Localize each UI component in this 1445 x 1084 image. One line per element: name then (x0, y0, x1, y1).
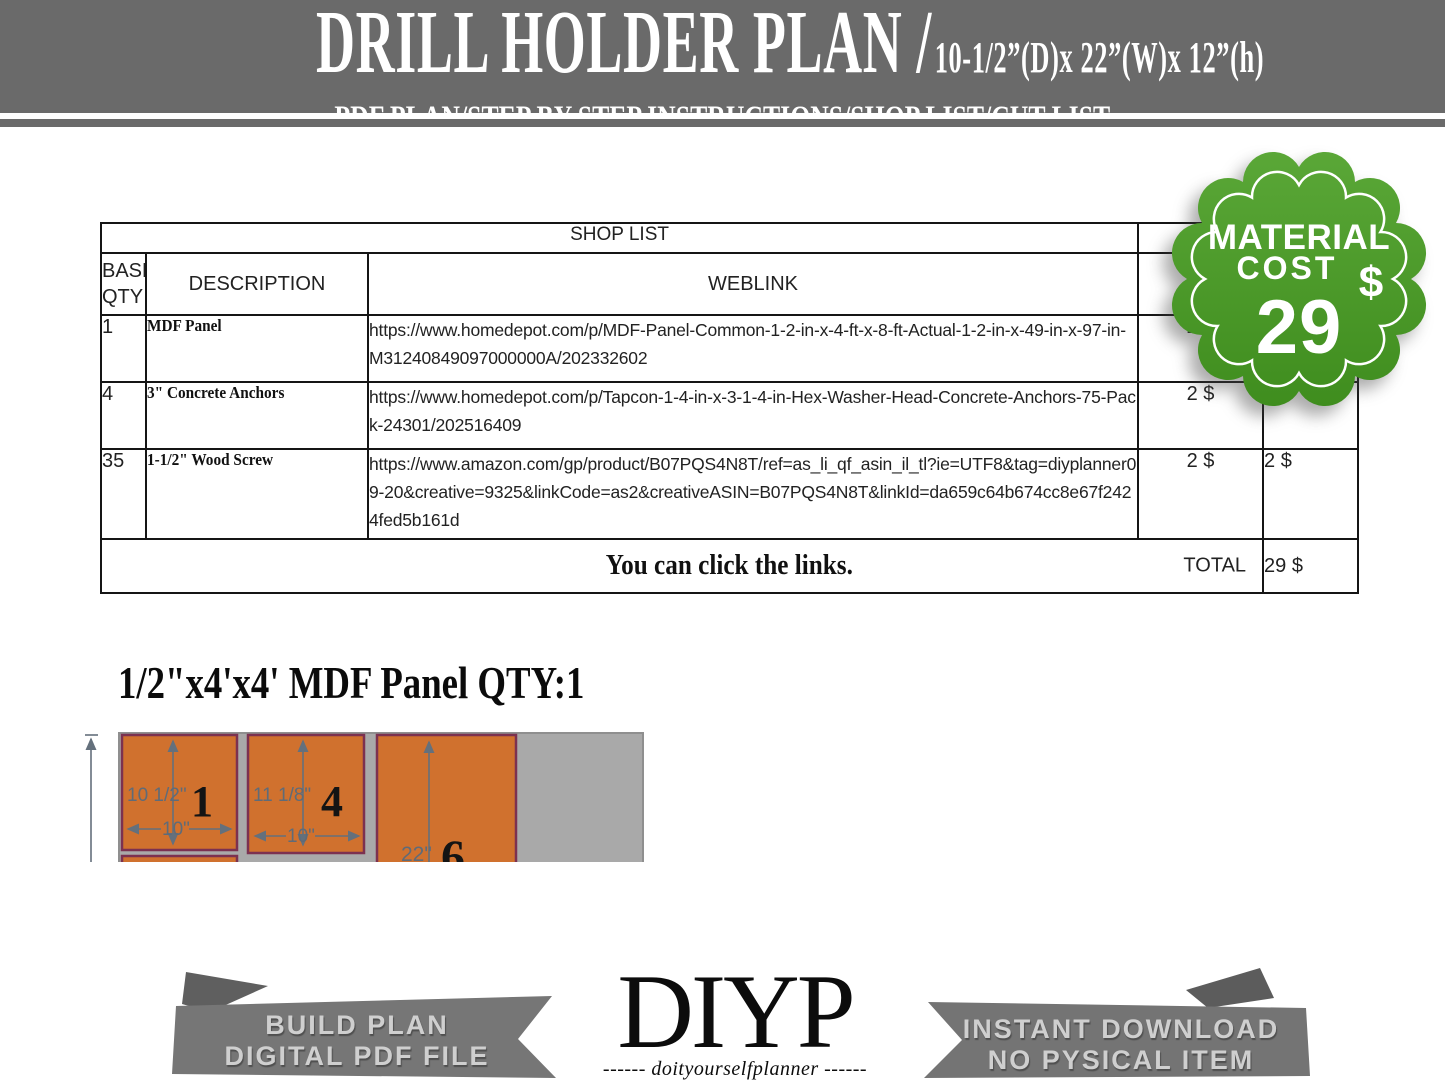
column-header-weblink: WEBLINK (368, 253, 1138, 315)
row-qty: 4 (101, 382, 146, 449)
row-description: 3" Concrete Anchors (146, 382, 368, 449)
ribbon-line1: BUILD PLAN (192, 1010, 522, 1041)
total-label: TOTAL (1183, 555, 1246, 578)
piece1-width-label: 10" (162, 819, 190, 840)
instant-download-ribbon: INSTANT DOWNLOAD NO PYSICAL ITEM (878, 962, 1314, 1080)
row-price2: 2 $ (1263, 449, 1358, 539)
page-subtitle: PDF PLAN/STEP BY STEP INSTRUCTIONS/SHOP … (335, 101, 1111, 113)
cut-diagram: 10 1/2" 1 10" 11 1/8" 4 10" 22" 6 (85, 732, 645, 862)
page-title: DRILL HOLDER PLAN / (316, 0, 932, 92)
column-header-base-qty: BASEQTY (101, 253, 146, 315)
ribbon-line1: INSTANT DOWNLOAD (956, 1014, 1286, 1045)
diyp-logo: DIYP ------ doityourselfplanner ------ (588, 962, 882, 1081)
weblink-text[interactable]: https://www.homedepot.com/p/Tapcon-1-4-i… (369, 387, 1136, 435)
piece1-number: 1 (191, 777, 213, 826)
logo-subtext: ------ doityourselfplanner ------ (588, 1058, 882, 1081)
piece4-number: 4 (321, 777, 343, 826)
row-weblink[interactable]: https://www.amazon.com/gp/product/B07PQS… (368, 449, 1138, 539)
cut-piece-below-1 (122, 856, 237, 862)
piece6-number: 6 (441, 831, 465, 862)
table-footer-cell: You can click the links. TOTAL (101, 539, 1263, 593)
row-description: MDF Panel (146, 315, 368, 382)
row-qty: 1 (101, 315, 146, 382)
piece6-height-label: 22" (401, 843, 432, 862)
cut-section-title: 1/2"x4'x4' MDF Panel QTY:1 (118, 656, 701, 709)
piece4-width-label: 10" (287, 826, 315, 847)
logo-text: DIYP (588, 962, 882, 1062)
click-links-note: You can click the links. (606, 550, 853, 582)
header-banner: DRILL HOLDER PLAN / 10-1/2”(D)x 22”(W)x … (0, 0, 1445, 113)
piece1-height-label: 10 1/2" (127, 785, 187, 806)
row-qty: 35 (101, 449, 146, 539)
row-price: 2 $ (1138, 449, 1263, 539)
header-divider (0, 119, 1445, 127)
row-weblink[interactable]: https://www.homedepot.com/p/Tapcon-1-4-i… (368, 382, 1138, 449)
weblink-text[interactable]: https://www.amazon.com/gp/product/B07PQS… (369, 454, 1136, 530)
material-cost-badge: MATERIAL COST $ 29 (1163, 146, 1435, 414)
product-dimensions: 10-1/2”(D)x 22”(W)x 12”(h) (935, 33, 1264, 82)
badge-cost-value: 29 (1163, 284, 1435, 371)
row-description: 1-1/2" Wood Screw (146, 449, 368, 539)
column-header-description: DESCRIPTION (146, 253, 368, 315)
ribbon-line2: DIGITAL PDF FILE (192, 1041, 522, 1072)
shop-list-title: SHOP LIST (101, 223, 1138, 253)
total-value: 29 $ (1263, 539, 1358, 593)
table-row: 35 1-1/2" Wood Screw https://www.amazon.… (101, 449, 1358, 539)
weblink-text[interactable]: https://www.homedepot.com/p/MDF-Panel-Co… (369, 320, 1126, 368)
ribbon-line2: NO PYSICAL ITEM (956, 1045, 1286, 1076)
page: DRILL HOLDER PLAN / 10-1/2”(D)x 22”(W)x … (0, 0, 1445, 1084)
row-weblink[interactable]: https://www.homedepot.com/p/MDF-Panel-Co… (368, 315, 1138, 382)
build-plan-ribbon: BUILD PLAN DIGITAL PDF FILE (168, 962, 578, 1080)
piece4-height-label: 11 1/8" (253, 785, 311, 806)
